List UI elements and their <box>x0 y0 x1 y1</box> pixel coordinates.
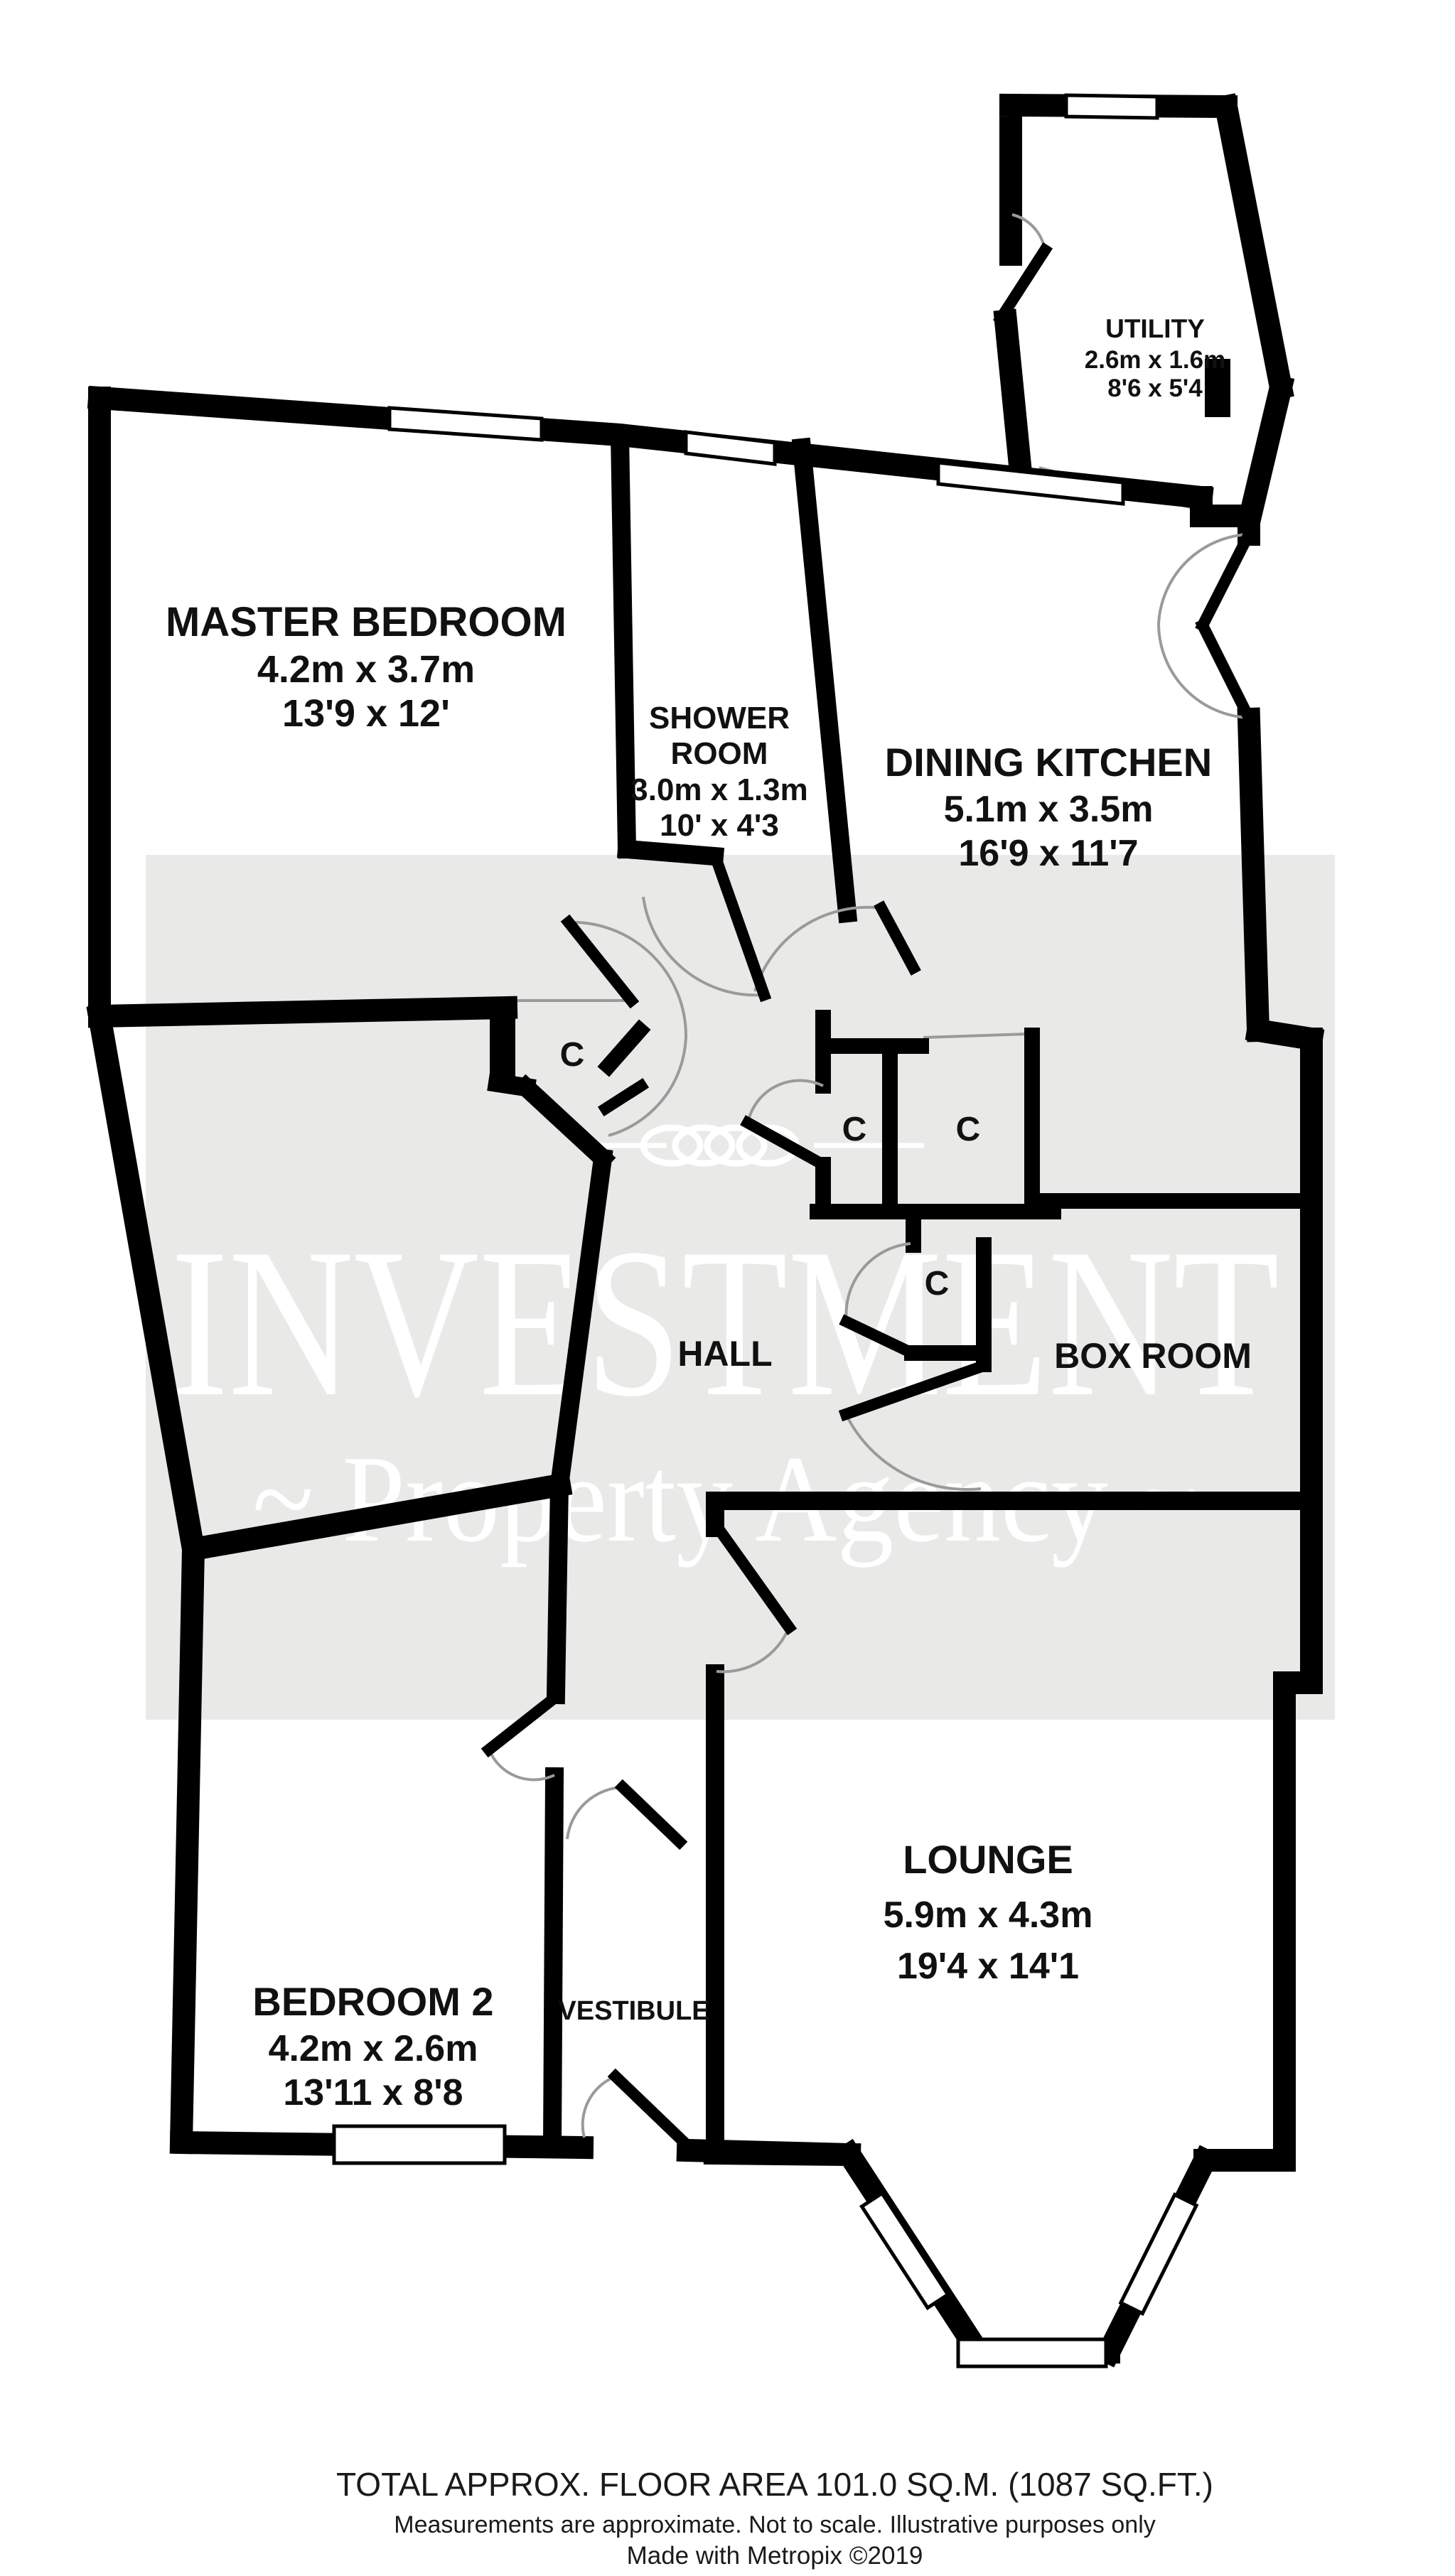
footer-total-area: TOTAL APPROX. FLOOR AREA 101.0 SQ.M. (10… <box>336 2466 1213 2503</box>
closet-label-2: C <box>842 1111 867 1148</box>
vestibule-name: VESTIBULE <box>558 1996 709 2026</box>
lounge-name: LOUNGE <box>903 1837 1073 1882</box>
floorplan-canvas: INVESTMENT ~ Property Agency ~ <box>0 0 1455 2576</box>
dining-kitchen-size-metric: 5.1m x 3.5m <box>944 789 1154 830</box>
closet-label-3: C <box>956 1111 981 1148</box>
bay-window-centre <box>958 2339 1106 2366</box>
lounge-size-imperial: 19'4 x 14'1 <box>897 1946 1079 1987</box>
room-label-bedroom-2: BEDROOM 2 4.2m x 2.6m 13'11 x 8'8 <box>252 1979 493 2113</box>
lounge-size-metric: 5.9m x 4.3m <box>884 1895 1093 1936</box>
watermark-title: INVESTMENT <box>171 1205 1279 1440</box>
bedroom-2-size-imperial: 13'11 x 8'8 <box>283 2072 463 2113</box>
floorplan-page: { "watermark": { "line1": "INVESTMENT", … <box>0 0 1455 2576</box>
shower-room-size-metric: 3.0m x 1.3m <box>630 772 808 807</box>
utility-size-imperial: 8'6 x 5'4 <box>1107 374 1203 402</box>
shower-room-name-line1: SHOWER <box>649 701 790 735</box>
master-bedroom-size-imperial: 13'9 x 12' <box>282 692 450 735</box>
footer-disclaimer: Measurements are approximate. Not to sca… <box>394 2511 1156 2538</box>
shower-room-size-imperial: 10' x 4'3 <box>660 808 779 843</box>
bedroom-2-size-metric: 4.2m x 2.6m <box>269 2028 478 2069</box>
hall-name: HALL <box>677 1334 772 1374</box>
master-bedroom-name: MASTER BEDROOM <box>166 599 567 645</box>
shower-room-name-line2: ROOM <box>671 736 768 771</box>
footer-credit: Made with Metropix ©2019 <box>627 2542 923 2570</box>
dining-kitchen-name: DINING KITCHEN <box>885 740 1212 785</box>
room-label-lounge: LOUNGE 5.9m x 4.3m 19'4 x 14'1 <box>884 1837 1093 1987</box>
bedroom-2-name: BEDROOM 2 <box>252 1979 493 2024</box>
box-room-name: BOX ROOM <box>1054 1336 1252 1376</box>
utility-window <box>1066 95 1157 118</box>
closet-label-4: C <box>925 1265 950 1303</box>
utility-name: UTILITY <box>1105 314 1205 343</box>
dining-kitchen-size-imperial: 16'9 x 11'7 <box>958 833 1138 874</box>
bedroom-2-window <box>334 2126 505 2163</box>
utility-size-metric: 2.6m x 1.6m <box>1085 346 1225 374</box>
master-bedroom-size-metric: 4.2m x 3.7m <box>257 648 475 691</box>
closet-label-1: C <box>560 1036 585 1074</box>
